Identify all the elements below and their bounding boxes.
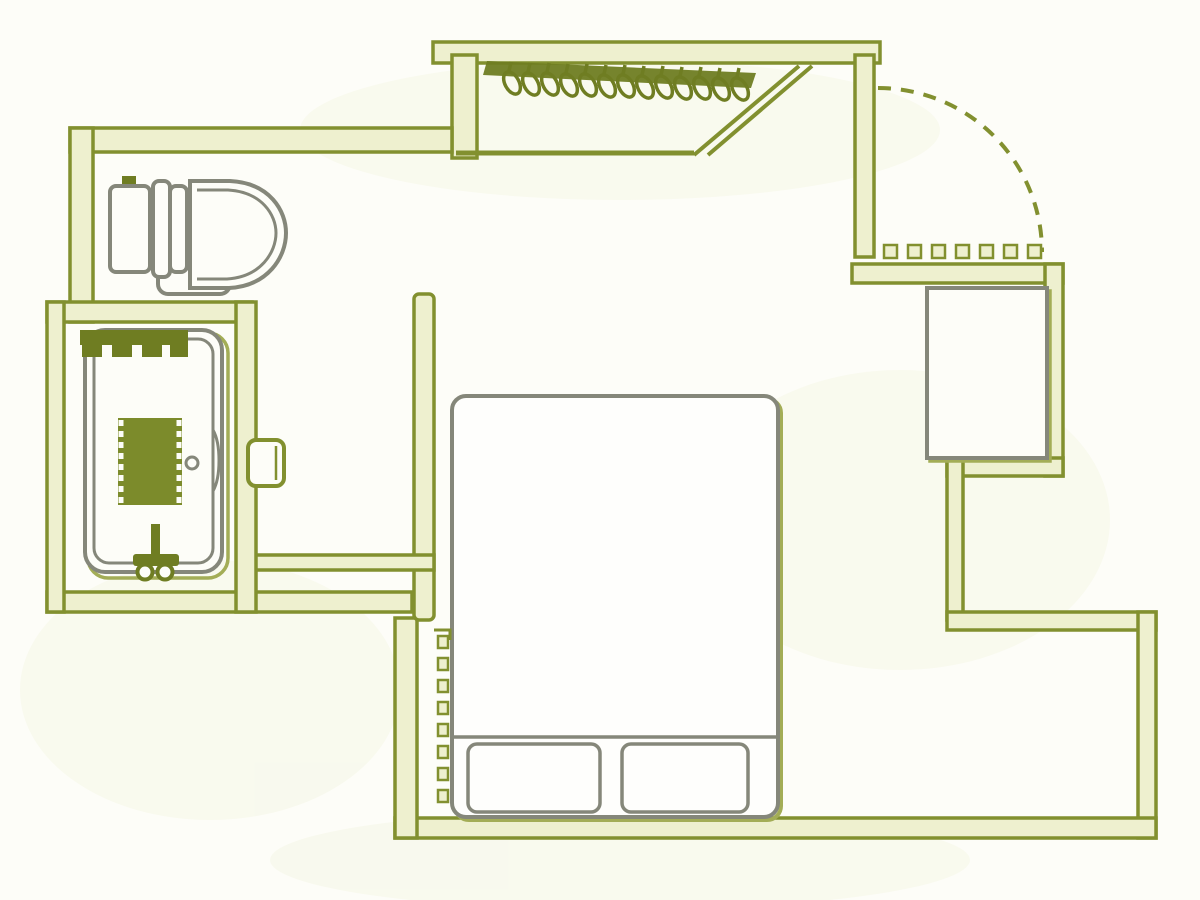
wall-toilet-west	[70, 128, 93, 322]
toilet-bowl	[190, 181, 286, 288]
storage-cabinet	[927, 288, 1050, 461]
wall-entry-south	[852, 264, 1063, 283]
wall-right-step-lower	[947, 612, 1156, 630]
wall-hall-lintel	[250, 555, 434, 570]
wall-west-lower	[395, 618, 417, 838]
wall-right-mid	[947, 458, 963, 620]
wall-door-hinge	[855, 55, 874, 257]
wall-bath-divider	[47, 302, 252, 322]
bathtub-grate	[118, 418, 182, 505]
bathtub-head-bar	[80, 330, 188, 345]
toilet-seat-hinge-2	[170, 186, 187, 272]
wall-closet-top	[433, 42, 880, 63]
wall-bath-south	[47, 592, 412, 612]
toilet	[110, 176, 286, 294]
floor-plan-image	[0, 0, 1200, 900]
wall-right-lower	[1138, 612, 1156, 838]
wall-bath-west	[47, 302, 64, 612]
toilet-tank	[110, 186, 150, 272]
pillow-right	[622, 744, 748, 812]
wall-closet-left	[452, 55, 477, 158]
pillow-left	[468, 744, 600, 812]
entry-door-threshold	[884, 245, 1041, 258]
wall-toilet-top	[70, 128, 452, 152]
toilet-seat-hinge-1	[153, 181, 170, 277]
double-bed	[452, 396, 781, 820]
step-dashed-line	[434, 630, 450, 802]
cabinet-outline	[927, 288, 1047, 458]
bath-door-handle	[248, 440, 284, 486]
floor-plan-canvas	[0, 0, 1200, 900]
